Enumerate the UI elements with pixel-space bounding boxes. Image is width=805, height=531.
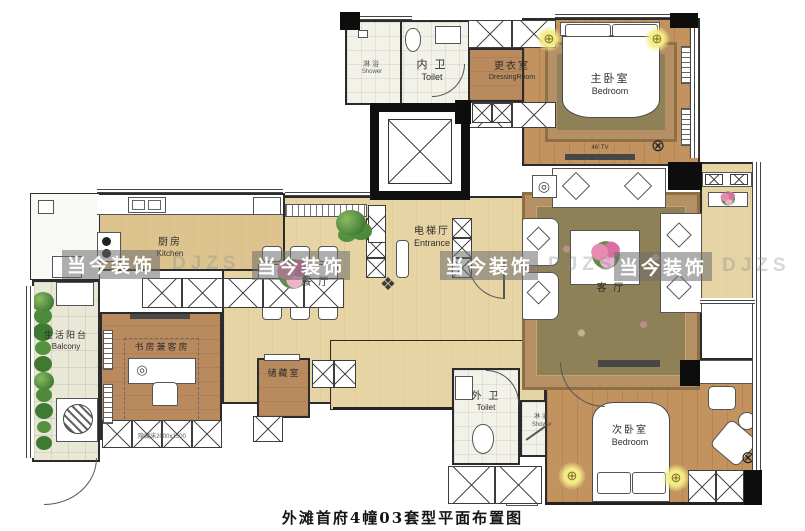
wall-segment (545, 502, 761, 505)
wardrobe-cell (688, 470, 716, 504)
curtain-strip (103, 330, 113, 370)
fridge (253, 197, 281, 215)
watermark-text: 当今装饰 (440, 251, 538, 280)
utility-appliance (38, 200, 54, 214)
curtain-strip (103, 384, 113, 424)
column (340, 12, 360, 30)
light-glyph: ⊕ (652, 31, 663, 47)
ceiling-light-icon: ⊕ (558, 462, 586, 490)
master-tv-cabinet (565, 154, 635, 160)
pillow (565, 24, 611, 37)
storage-side-cabinets (312, 360, 356, 388)
desk-decor-icon: ◎ (134, 362, 150, 378)
window (285, 190, 370, 196)
storage-south-cabinet (253, 416, 283, 442)
light-glyph: ⊕ (671, 470, 682, 486)
kitchen-sink-bowl (132, 200, 145, 210)
dining-plant (336, 210, 366, 236)
window (752, 162, 761, 505)
cushion-cell (705, 174, 723, 185)
watermark: 当今装饰 (62, 250, 160, 279)
study-tv-band (130, 314, 190, 319)
cabinet-cell (312, 360, 334, 388)
wardrobe-cell (512, 102, 556, 128)
fan-glyph: ⊗ (651, 136, 665, 156)
bathroom-sink (435, 26, 461, 44)
study-chair (152, 382, 178, 406)
ceiling-light-icon: ⊕ (644, 26, 670, 52)
label-study: 书房兼客房 (124, 342, 200, 354)
wardrobe-cell (716, 470, 744, 504)
cabinet-cell (182, 278, 222, 308)
column (668, 162, 702, 190)
column (744, 470, 762, 505)
label-outer-toilet: 外 卫 Toilet (460, 390, 512, 413)
watermark-ghost: DJZS (172, 253, 241, 275)
cabinet-cell (142, 278, 182, 308)
watermark: 当今装饰 (440, 251, 538, 280)
decor-glyph: ◎ (538, 178, 550, 195)
decor-glyph: ◎ (136, 362, 147, 378)
window (555, 12, 670, 18)
balcony-door-arc (44, 458, 97, 505)
pillow (632, 472, 666, 494)
bedroom2-west-wardrobe (448, 466, 542, 504)
master-tv-label: 46' TV (568, 145, 632, 153)
label-inner-toilet: 内 卫 Toilet (404, 58, 460, 84)
shaft-south-cabinet (368, 205, 386, 243)
fan-coil-icon: ⊗ (648, 136, 668, 156)
wall-segment (333, 407, 453, 410)
label-second-bedroom: 次卧室 Bedroom (592, 424, 668, 449)
cushion-cell (730, 174, 748, 185)
watermark: 当今装饰 (252, 251, 350, 280)
cabinet-cell (253, 416, 283, 442)
washer-drum (63, 404, 93, 434)
label-dressing: 更衣室 DressingRoom (468, 60, 556, 82)
cabinet-cell (223, 278, 263, 308)
bedroom2-chair (708, 386, 736, 410)
cabinet-cell (368, 205, 386, 243)
bedroom2-south-wardrobe (688, 470, 744, 504)
cabinet-cell (492, 103, 512, 123)
bay-table-flowers (720, 191, 736, 206)
watermark: 当今装饰 (614, 252, 712, 281)
label-living: 客 厅 (586, 282, 636, 295)
column (455, 100, 471, 124)
label-shower-top: 淋浴 Shower (350, 60, 394, 77)
wardrobe-cell (468, 20, 512, 48)
floor-plan: ⊕ ⊕ 46' TV ⊗ ❖ ◎ (0, 0, 805, 531)
balcony-plants (32, 292, 54, 312)
label-entrance: 电梯厅 Entrance (392, 225, 472, 250)
label-storage: 储藏室 (258, 368, 310, 380)
bay-bench-cushions (730, 174, 748, 185)
window (97, 187, 283, 193)
storage-floor (257, 358, 310, 418)
balcony-sink (56, 282, 94, 306)
ceiling-light-icon: ⊕ (662, 464, 690, 492)
window (352, 14, 412, 20)
plan-title: 外滩首府4幢03套型平面布置图 (0, 507, 805, 528)
window (26, 286, 34, 458)
decor-glyph: ❖ (380, 274, 396, 295)
window (700, 298, 755, 304)
toilet-partition (400, 22, 402, 103)
light-glyph: ⊕ (544, 31, 555, 47)
label-balcony: 生活阳台 Balcony (34, 330, 98, 352)
watermark-text: 当今装饰 (62, 250, 160, 279)
side-table-decor-icon: ◎ (534, 177, 554, 195)
bedroom2-tv-band (598, 360, 660, 367)
column (670, 13, 698, 28)
balcony-plants (34, 372, 54, 390)
kitchen-sink-bowl (148, 200, 161, 210)
elevator-shaft-cross (388, 119, 452, 184)
shaft-side-cabinet (472, 103, 512, 123)
entry-decor-icon: ❖ (374, 272, 402, 296)
cabinet-cell (334, 360, 356, 388)
watermark-text: 当今装饰 (252, 251, 350, 280)
watermark-ghost: DJZS (548, 254, 617, 276)
watermark-text: 当今装饰 (614, 252, 712, 281)
wardrobe-cell (448, 466, 495, 504)
cabinet-cell (472, 103, 492, 123)
bay-bench-cushions (705, 174, 723, 185)
label-shower-bottom: 淋浴 Shower (522, 414, 562, 430)
shower-head (358, 30, 368, 38)
light-glyph: ⊕ (567, 468, 578, 484)
ceiling-light-icon: ⊕ (536, 26, 562, 52)
toilet-bowl (472, 424, 494, 454)
storage-door-sill (264, 354, 300, 361)
window (690, 28, 699, 158)
pillow (597, 472, 631, 494)
label-master-bedroom: 主卧室 Bedroom (565, 72, 655, 98)
watermark-ghost: DJZS (722, 255, 791, 277)
column (680, 360, 700, 386)
cooktop-burner (102, 237, 111, 246)
toilet-bowl (405, 28, 421, 52)
label-hidden-bed-note: 隐藏床2000x1500 (124, 424, 200, 445)
wardrobe-cell (495, 466, 542, 504)
